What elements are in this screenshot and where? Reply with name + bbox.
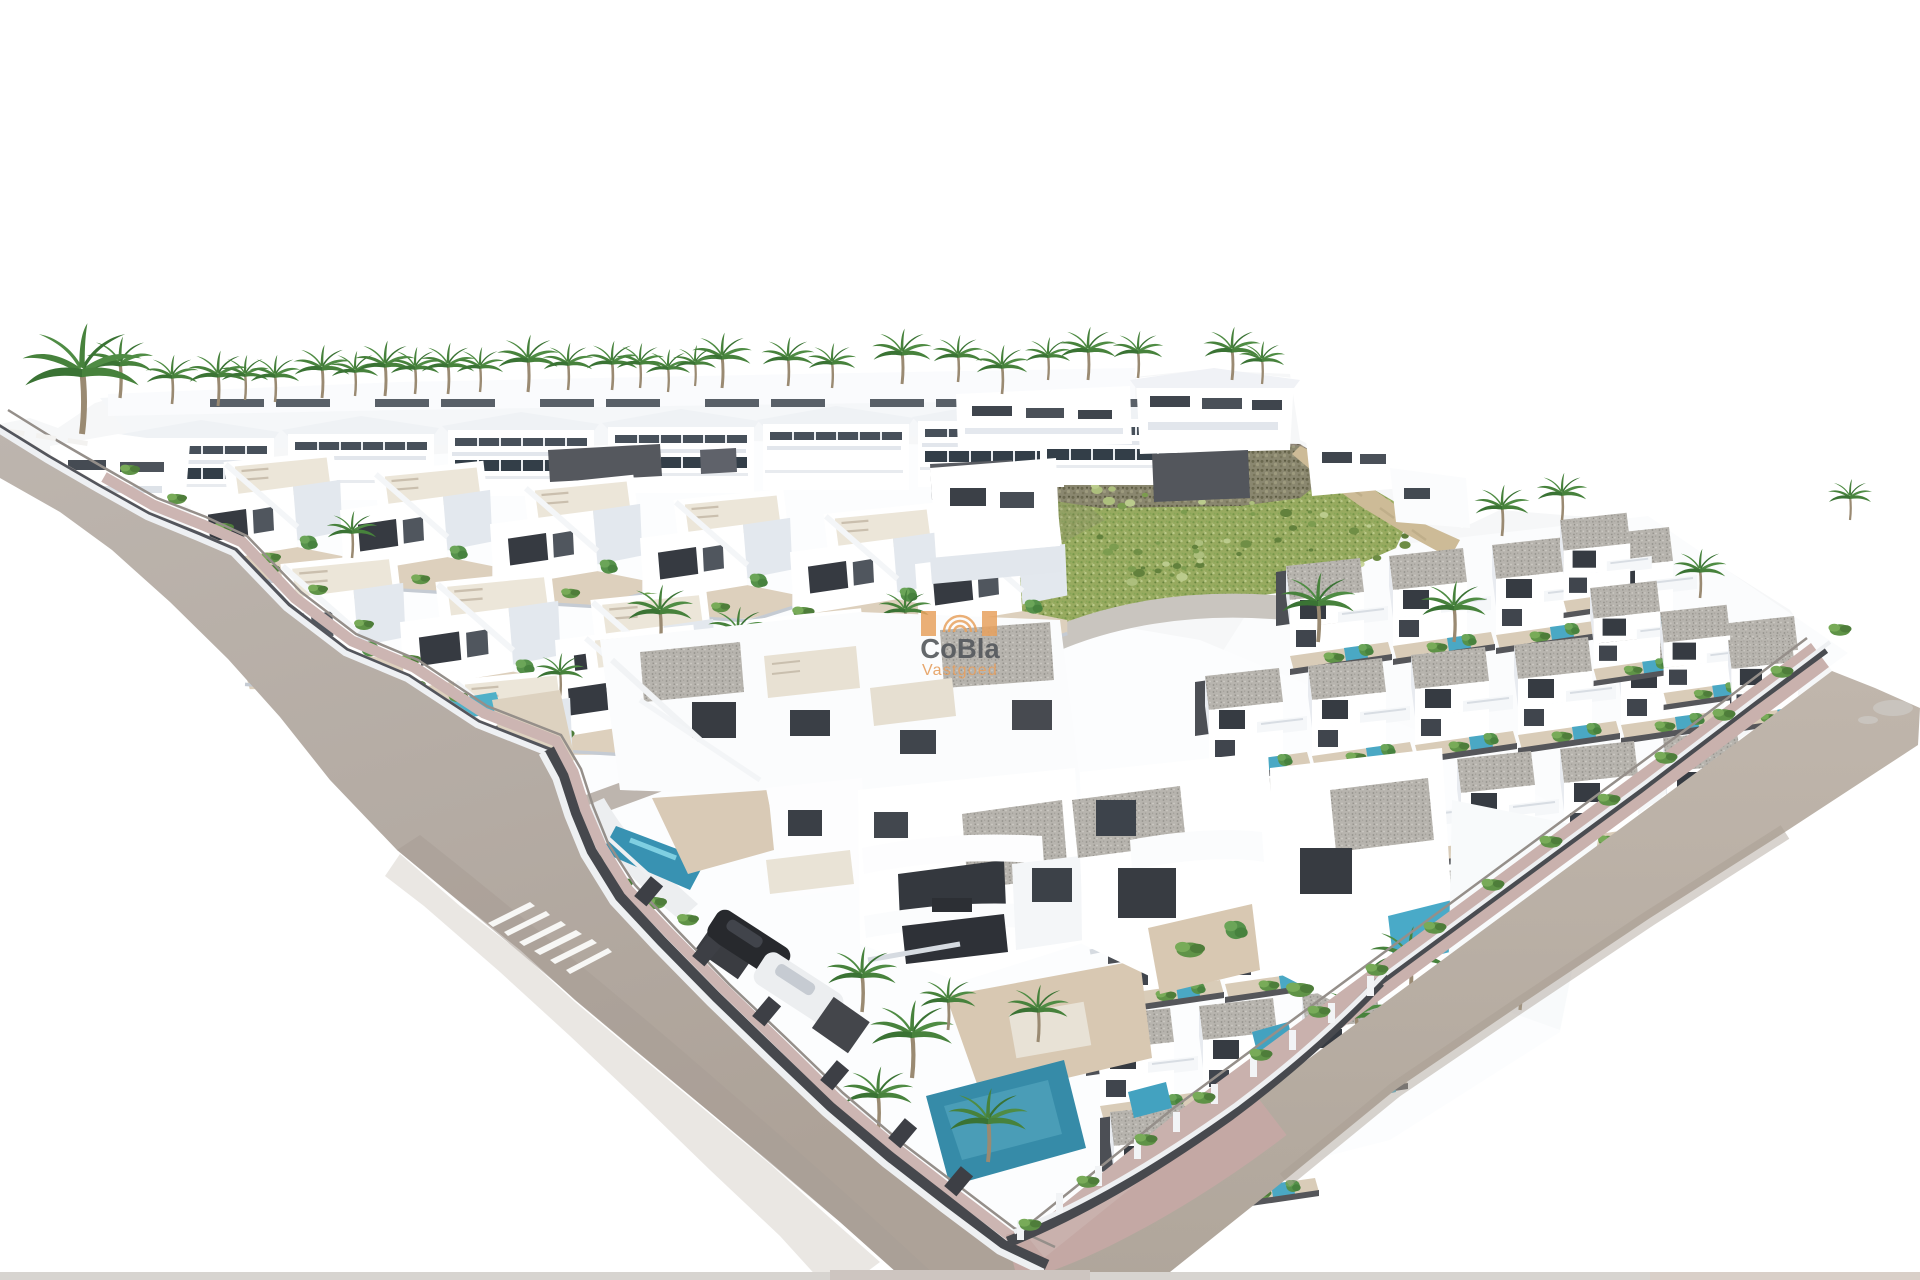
svg-text:CoBla: CoBla	[920, 633, 1000, 664]
svg-text:Vastgoed: Vastgoed	[922, 662, 998, 679]
